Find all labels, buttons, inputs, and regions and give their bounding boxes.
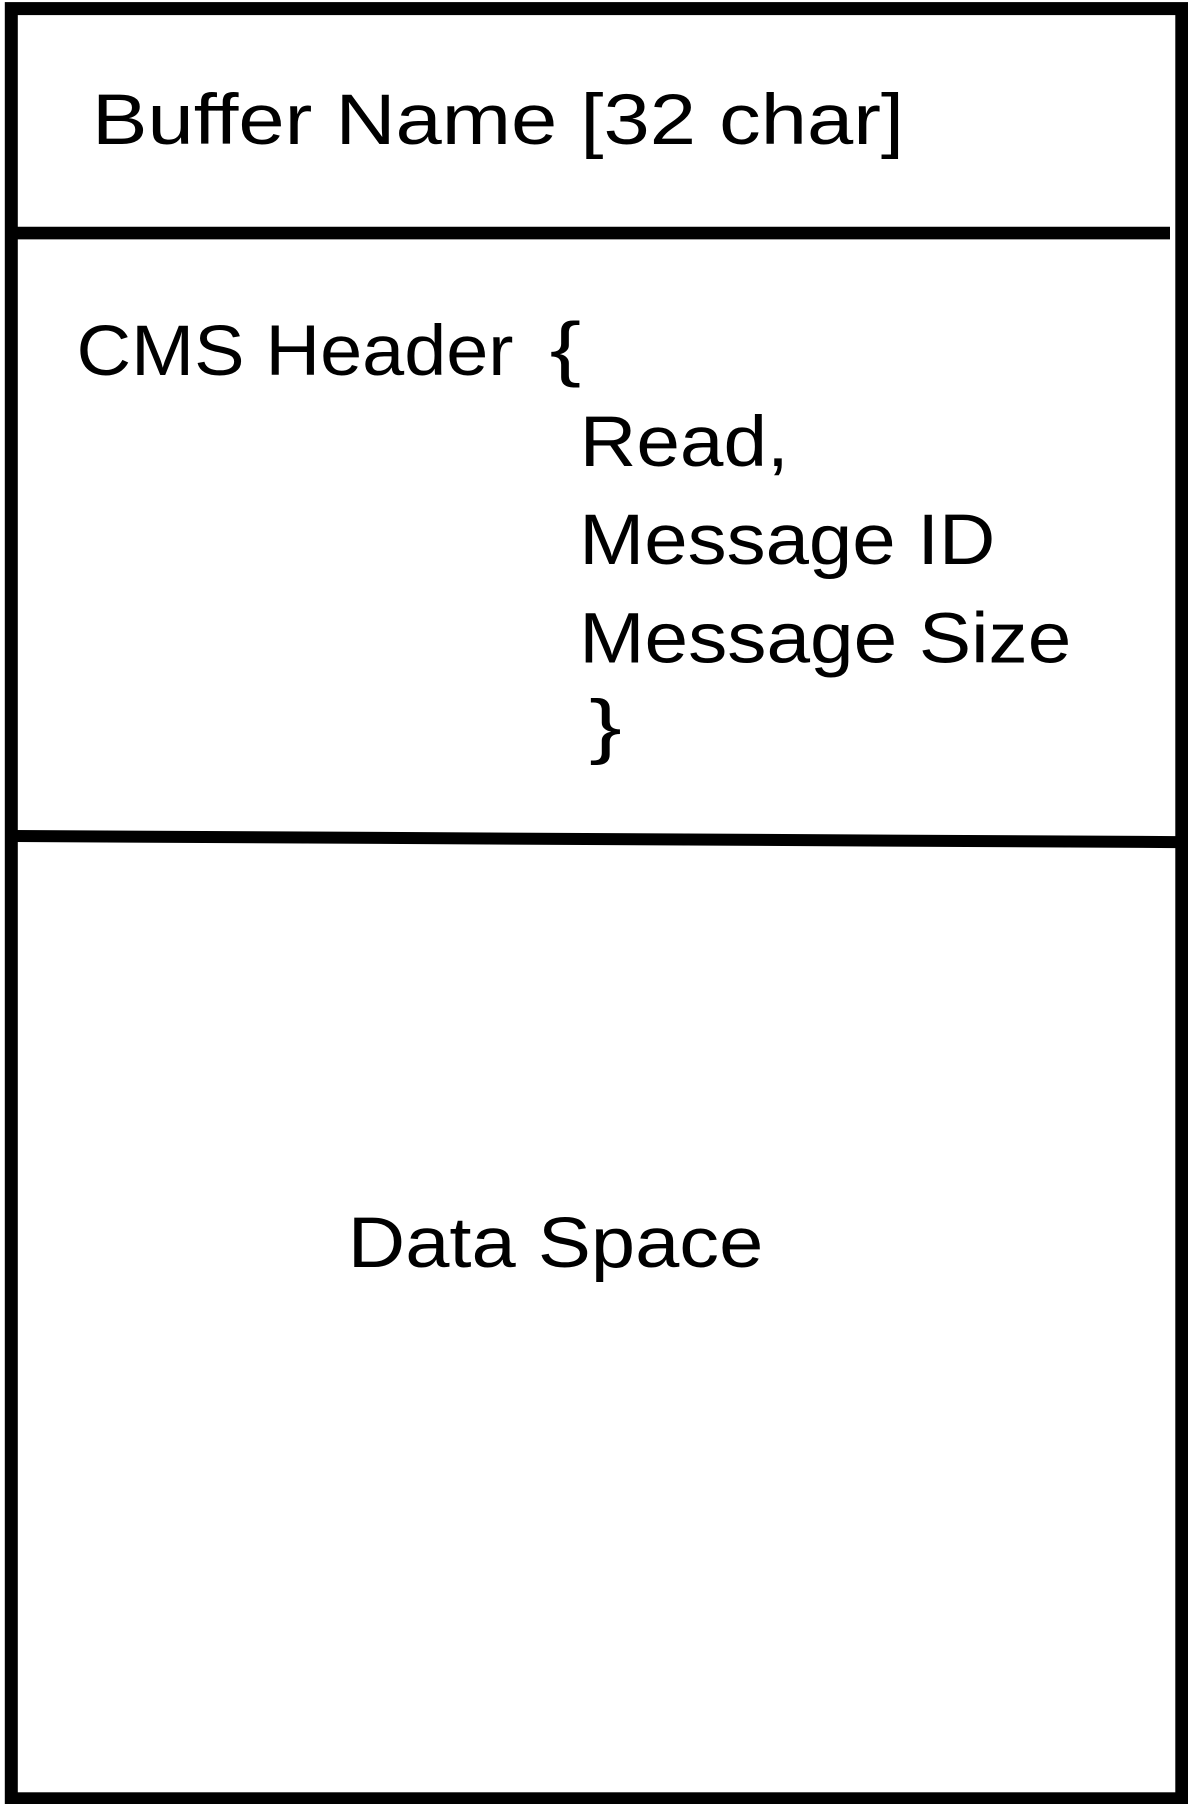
svg-text:}: } <box>589 686 621 766</box>
svg-text:Read,: Read, <box>580 402 789 482</box>
svg-text:Message ID: Message ID <box>579 500 995 580</box>
svg-text:Data Space: Data Space <box>348 1203 764 1283</box>
svg-text:Buffer Name [32 char]: Buffer Name [32 char] <box>92 80 904 160</box>
svg-text:{: { <box>550 308 581 388</box>
svg-text:Message Size: Message Size <box>579 599 1071 679</box>
svg-text:CMS Header: CMS Header <box>77 311 514 391</box>
